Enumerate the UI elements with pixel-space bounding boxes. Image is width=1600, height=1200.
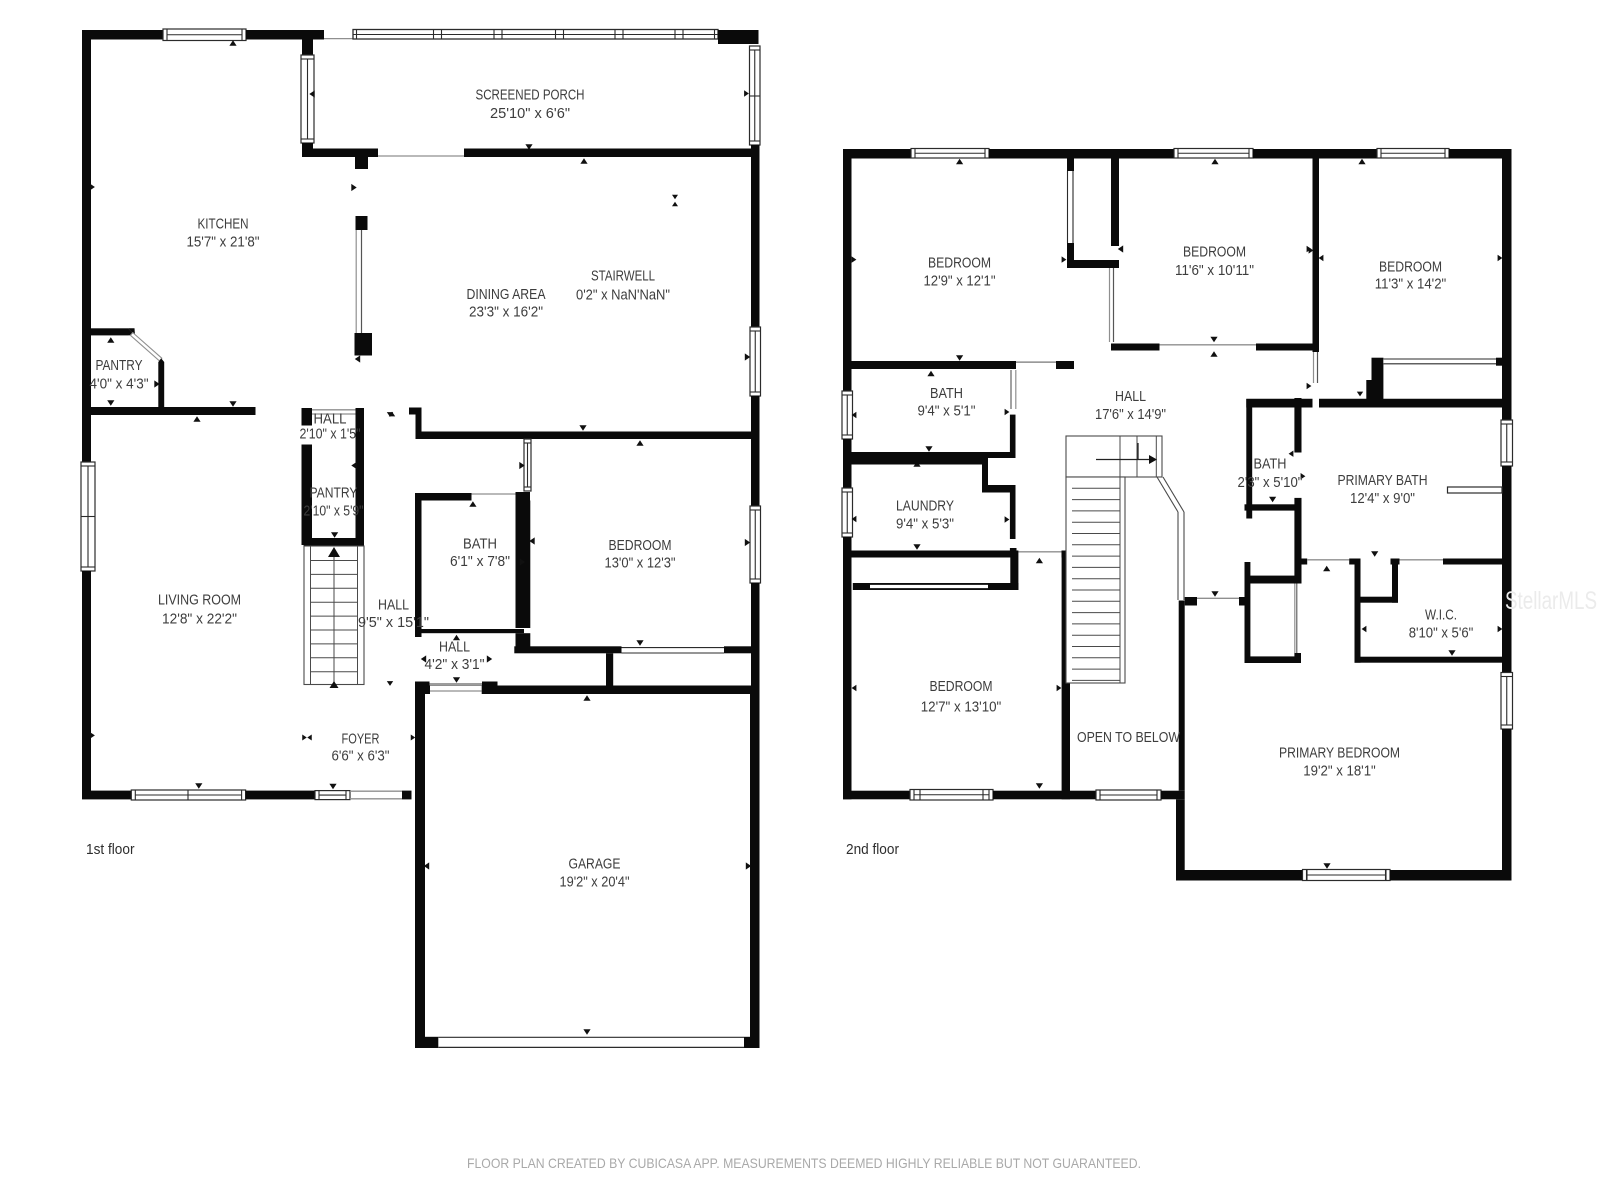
svg-text:11'6" x 10'11": 11'6" x 10'11" [1175,262,1254,279]
svg-text:12'4" x 9'0": 12'4" x 9'0" [1350,490,1415,507]
svg-text:StellarMLS: StellarMLS [1505,587,1597,615]
svg-text:1st floor: 1st floor [86,842,135,858]
svg-text:9'5" x 15'1": 9'5" x 15'1" [358,614,429,631]
svg-text:FLOOR PLAN CREATED BY CUBICASA: FLOOR PLAN CREATED BY CUBICASA APP. MEAS… [467,1155,1141,1171]
svg-text:SCREENED PORCH: SCREENED PORCH [476,87,585,104]
svg-text:2'10" x 5'9": 2'10" x 5'9" [304,503,364,520]
svg-text:19'2" x 20'4": 19'2" x 20'4" [560,874,630,891]
svg-text:LAUNDRY: LAUNDRY [896,498,954,515]
svg-text:6'6" x 6'3": 6'6" x 6'3" [332,748,390,765]
svg-text:12'7" x 13'10": 12'7" x 13'10" [921,699,1002,716]
svg-text:4'0" x 4'3": 4'0" x 4'3" [90,376,149,393]
svg-text:BEDROOM: BEDROOM [930,678,993,695]
svg-text:9'4" x 5'1": 9'4" x 5'1" [918,403,976,420]
svg-text:13'0" x 12'3": 13'0" x 12'3" [605,555,676,572]
svg-text:15'7" x 21'8": 15'7" x 21'8" [187,234,260,251]
svg-text:4'2" x 3'1": 4'2" x 3'1" [425,656,485,673]
svg-text:BEDROOM: BEDROOM [1379,259,1442,276]
svg-text:BATH: BATH [930,385,963,402]
svg-text:23'3" x 16'2": 23'3" x 16'2" [469,304,543,321]
svg-text:BATH: BATH [1254,456,1287,473]
svg-text:2nd floor: 2nd floor [846,842,899,858]
svg-text:BEDROOM: BEDROOM [928,255,991,272]
svg-text:12'9" x 12'1": 12'9" x 12'1" [924,273,996,290]
svg-text:6'1" x 7'8": 6'1" x 7'8" [450,553,510,570]
svg-text:HALL: HALL [439,639,470,656]
svg-text:HALL: HALL [378,597,409,614]
svg-text:STAIRWELL: STAIRWELL [591,268,655,285]
svg-text:KITCHEN: KITCHEN [198,216,249,233]
svg-text:17'6" x 14'9": 17'6" x 14'9" [1095,406,1166,423]
svg-text:DINING AREA: DINING AREA [467,286,547,303]
svg-text:2'10" x 1'5": 2'10" x 1'5" [300,426,361,443]
svg-text:HALL: HALL [1115,388,1146,405]
svg-text:FOYER: FOYER [342,731,380,748]
svg-text:19'2" x 18'1": 19'2" x 18'1" [1303,763,1376,780]
svg-text:0'2" x NaN'NaN": 0'2" x NaN'NaN" [576,287,670,304]
svg-text:BATH: BATH [463,536,497,553]
svg-text:LIVING ROOM: LIVING ROOM [158,592,241,609]
svg-text:W.I.C.: W.I.C. [1425,607,1457,624]
svg-text:12'8" x 22'2": 12'8" x 22'2" [162,611,237,628]
svg-text:8'10" x 5'6": 8'10" x 5'6" [1409,625,1474,642]
svg-text:2'3" x 5'10": 2'3" x 5'10" [1238,474,1303,491]
svg-text:OPEN TO BELOW: OPEN TO BELOW [1077,729,1181,746]
svg-text:9'4" x 5'3": 9'4" x 5'3" [896,516,954,533]
svg-text:PRIMARY BEDROOM: PRIMARY BEDROOM [1279,745,1400,762]
svg-text:11'3" x 14'2": 11'3" x 14'2" [1375,276,1447,293]
svg-text:BEDROOM: BEDROOM [1183,244,1246,261]
svg-text:PANTRY: PANTRY [310,485,358,502]
svg-text:25'10" x 6'6": 25'10" x 6'6" [490,105,570,122]
svg-text:BEDROOM: BEDROOM [609,537,672,554]
svg-text:GARAGE: GARAGE [569,856,621,873]
svg-text:PRIMARY BATH: PRIMARY BATH [1338,472,1428,489]
svg-text:PANTRY: PANTRY [96,357,143,374]
